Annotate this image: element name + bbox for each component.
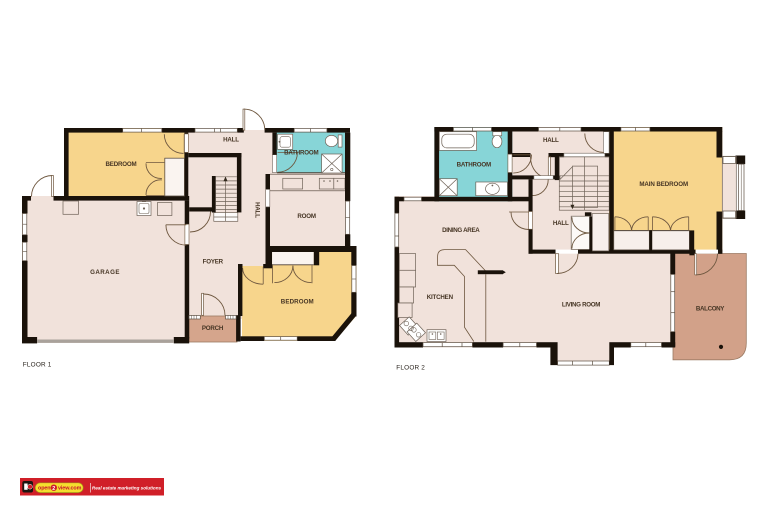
svg-text:GARAGE: GARAGE bbox=[90, 269, 120, 276]
svg-text:FLOOR 1: FLOOR 1 bbox=[23, 361, 52, 368]
svg-text:HALL: HALL bbox=[543, 137, 559, 144]
svg-text:HALL: HALL bbox=[253, 202, 260, 218]
svg-text:FOYER: FOYER bbox=[203, 259, 224, 266]
svg-text:BALCONY: BALCONY bbox=[696, 306, 725, 313]
svg-text:open: open bbox=[38, 486, 50, 492]
svg-text:BATHROOM: BATHROOM bbox=[457, 162, 491, 169]
svg-text:FLOOR 2: FLOOR 2 bbox=[396, 365, 425, 372]
svg-text:HALL: HALL bbox=[223, 137, 239, 144]
svg-text:ROOM: ROOM bbox=[297, 213, 315, 220]
svg-text:PORCH: PORCH bbox=[202, 325, 224, 332]
svg-text:BATHROOM: BATHROOM bbox=[284, 150, 318, 157]
svg-text:MAIN BEDROOM: MAIN BEDROOM bbox=[639, 181, 688, 188]
svg-text:Real estate marketing solution: Real estate marketing solutions bbox=[92, 486, 162, 491]
svg-text:BEDROOM: BEDROOM bbox=[106, 161, 137, 168]
svg-text:KITCHEN: KITCHEN bbox=[427, 294, 454, 301]
svg-text:DINING AREA: DINING AREA bbox=[442, 227, 480, 234]
svg-text:HALL: HALL bbox=[553, 220, 569, 227]
svg-text:LIVING ROOM: LIVING ROOM bbox=[562, 302, 600, 309]
svg-text:BEDROOM: BEDROOM bbox=[281, 298, 314, 305]
svg-text:2: 2 bbox=[52, 486, 55, 492]
svg-text:view.com: view.com bbox=[58, 486, 82, 492]
